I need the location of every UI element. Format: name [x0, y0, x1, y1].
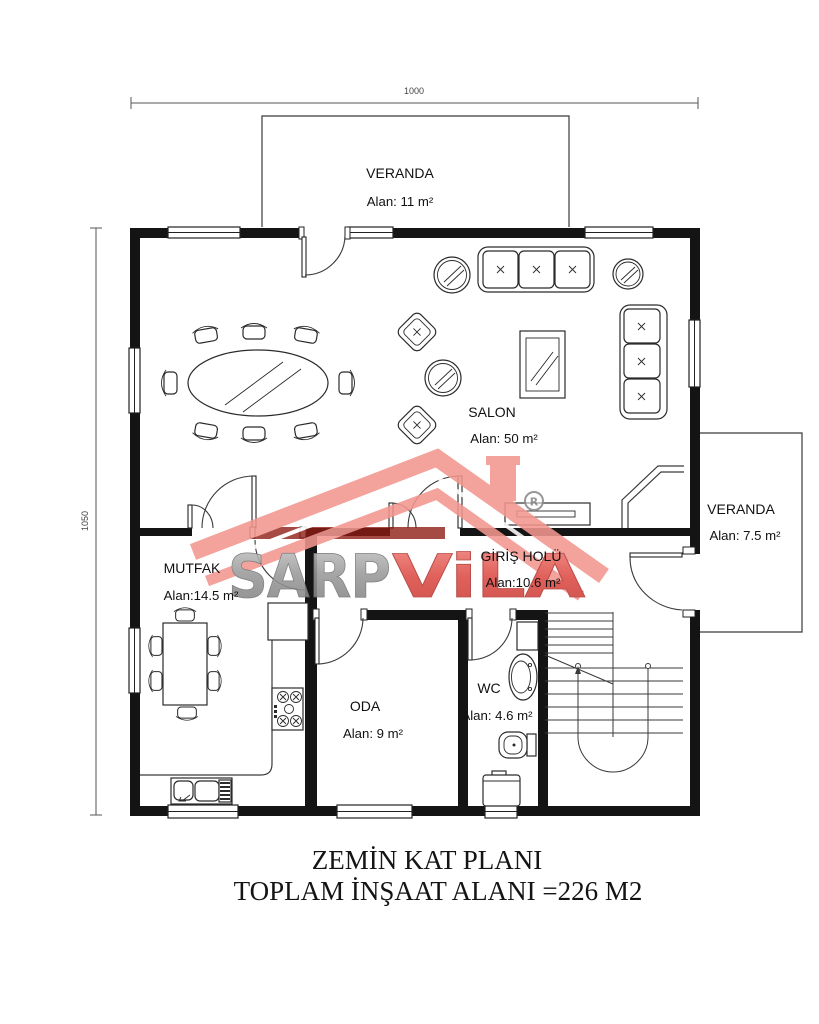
- stove: [272, 688, 303, 730]
- kitchen-fixtures: [140, 603, 308, 804]
- label-salon: SALON Alan: 50 m²: [468, 404, 538, 446]
- corner-bay: [622, 466, 684, 528]
- salon-furniture: [162, 247, 668, 525]
- round-table-center: [425, 360, 461, 396]
- plan-title: ZEMİN KAT PLANI TOPLAM İNŞAAT ALANI =226…: [234, 845, 643, 906]
- oda-area: Alan: 9 m²: [343, 726, 404, 741]
- sofa-right: [620, 305, 667, 419]
- wc-door: [466, 609, 516, 660]
- veranda-right-area: Alan: 7.5 m²: [709, 528, 781, 543]
- wc-name: WC: [477, 680, 500, 696]
- mutfak-name: MUTFAK: [164, 560, 221, 576]
- round-table-left: [434, 257, 470, 293]
- label-oda: ODA Alan: 9 m²: [343, 698, 404, 741]
- wc-toilet: [499, 732, 536, 758]
- glass-cabinet: [520, 331, 565, 398]
- window-top-right: [585, 227, 653, 238]
- wc-area: Alan: 4.6 m²: [461, 708, 533, 723]
- dimension-height-label: 1050: [80, 511, 90, 531]
- mutfak-area: Alan:14.5 m²: [164, 588, 239, 603]
- salon-name: SALON: [468, 404, 515, 420]
- title-line2: TOPLAM İNŞAAT ALANI =226 M2: [234, 876, 643, 906]
- watermark-chimney: [490, 463, 516, 501]
- window-bottom-wc: [485, 805, 517, 818]
- floor-plan-drawing: 1000 1050: [0, 0, 819, 1024]
- dimension-width-label: 1000: [404, 86, 424, 96]
- svg-text:R: R: [530, 496, 539, 509]
- dining-table: [188, 350, 328, 416]
- sofa-top: [478, 247, 594, 292]
- giris-holu-area: Alan:10.6 m²: [486, 575, 561, 590]
- window-veranda-top: [348, 227, 393, 238]
- window-top-left: [168, 227, 240, 238]
- title-line1: ZEMİN KAT PLANI: [312, 845, 543, 875]
- window-bottom-oda: [337, 805, 412, 818]
- window-right-salon: [689, 320, 700, 387]
- floor-plan-page: 1000 1050: [0, 0, 819, 1024]
- veranda-top-name: VERANDA: [366, 165, 434, 181]
- label-veranda-top: VERANDA Alan: 11 m²: [366, 165, 434, 209]
- round-table-right: [613, 259, 643, 289]
- veranda-right-door: [630, 547, 695, 617]
- veranda-top-area: Alan: 11 m²: [367, 194, 434, 209]
- registered-trademark-icon: R: [525, 492, 543, 510]
- salon-area: Alan: 50 m²: [470, 431, 538, 446]
- wc-cabinet: [517, 622, 538, 650]
- kitchen-table: [149, 608, 221, 720]
- armchair-top: [396, 311, 438, 353]
- window-left-mutfak: [129, 628, 140, 693]
- armchair-bottom: [396, 404, 438, 446]
- label-veranda-right: VERANDA Alan: 7.5 m²: [707, 501, 781, 543]
- washing-machine: [483, 771, 520, 806]
- wc-sink: [509, 654, 537, 700]
- oda-name: ODA: [350, 698, 381, 714]
- watermark-text-gray: SARP: [228, 542, 390, 612]
- staircase: [545, 612, 683, 772]
- giris-holu-name: GİRİŞ HOLÜ: [481, 547, 562, 564]
- veranda-right-name: VERANDA: [707, 501, 775, 517]
- window-left-salon: [129, 348, 140, 413]
- window-bottom-mutfak: [168, 805, 238, 818]
- kitchen-sink: [171, 778, 232, 804]
- double-door-dining: [188, 476, 256, 528]
- oda-door: [313, 609, 367, 664]
